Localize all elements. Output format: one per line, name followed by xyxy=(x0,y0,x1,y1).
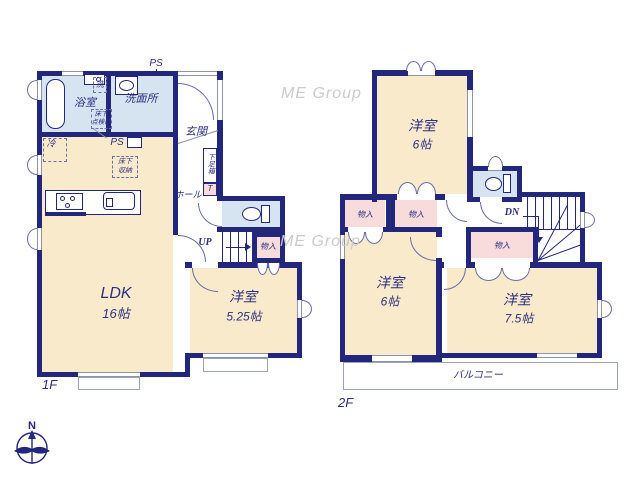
room-bedroom6n-fill xyxy=(377,76,467,194)
ps-top-label: PS xyxy=(149,58,162,71)
casement-window-icon xyxy=(488,156,503,167)
bathtub-icon xyxy=(46,79,65,129)
stairs-up-label: UP xyxy=(198,237,211,250)
wall xyxy=(442,353,602,358)
casement-window-icon xyxy=(421,61,436,71)
wall xyxy=(340,194,377,200)
window xyxy=(37,228,42,250)
toilet-door-swing-icon xyxy=(198,203,222,227)
toilet-tank-icon xyxy=(503,174,511,193)
toilet-tank-icon xyxy=(261,205,270,223)
room-bedroom6n-size: 6帖 xyxy=(413,138,432,153)
casement-window-icon xyxy=(302,300,312,318)
room-ldk-size: 16帖 xyxy=(102,306,129,322)
casement-window-icon xyxy=(406,61,421,71)
fridge-label: 冷 xyxy=(46,138,55,149)
floorplan: 浴室 洗面所 洗 床下 点検口 PS 玄関 下足箱 T ホール 冷 PS 床下 … xyxy=(0,0,640,480)
floor-storage-label: 床下 収納 xyxy=(118,158,132,176)
window xyxy=(537,353,577,358)
stairs-arrow-head xyxy=(245,243,251,251)
casement-window-icon xyxy=(585,212,595,228)
window xyxy=(62,71,83,76)
entrance-door-swing-icon xyxy=(178,83,214,120)
wall xyxy=(340,194,345,362)
compass: N xyxy=(10,418,66,470)
room-bath-label: 浴室 xyxy=(74,97,96,111)
casement-window-icon xyxy=(27,228,37,250)
compass-north-label: N xyxy=(28,420,36,432)
closet-opening xyxy=(397,194,435,200)
shoebox-label: 下足箱 xyxy=(206,154,215,175)
closet-a-label: 物入 xyxy=(357,210,373,220)
wall xyxy=(37,71,42,377)
stairs-2f xyxy=(527,197,580,262)
floor2-label: 2F xyxy=(338,395,353,411)
watermark: ME Group xyxy=(280,233,361,251)
room-ldk-label: LDK xyxy=(100,284,131,304)
floor-hatch-label: 床下 点検口 xyxy=(91,111,111,127)
burner-icon xyxy=(70,196,75,201)
counter-edge xyxy=(45,212,86,216)
room-bedroom75-label: 洋室 xyxy=(503,291,531,309)
window xyxy=(467,90,473,137)
wall xyxy=(580,192,585,268)
entrance-door xyxy=(177,71,217,76)
watermark: ME Group xyxy=(281,85,362,103)
room-hall-label: ホール xyxy=(174,189,201,200)
room-bedroom75-size: 7.5帖 xyxy=(505,312,534,327)
vanity-bowl-icon xyxy=(119,80,134,91)
wall xyxy=(173,137,178,235)
burner-icon xyxy=(60,196,65,201)
ps-box xyxy=(127,137,142,148)
faucet-icon xyxy=(106,198,113,207)
balcony-label: バルコニー xyxy=(453,370,503,383)
wall xyxy=(185,262,192,268)
room-bedroom525-size: 5.25帖 xyxy=(226,310,261,325)
window xyxy=(372,355,412,362)
stairs-arrow-head xyxy=(535,237,543,243)
closet-b-label: 物入 xyxy=(408,210,424,220)
room-bedroom6w-size: 6帖 xyxy=(381,295,400,310)
closet-1f-label: 物入 xyxy=(260,242,276,252)
toilet-bowl-icon xyxy=(485,177,502,191)
terrace-step xyxy=(203,358,268,372)
floor1-label: 1F xyxy=(42,377,57,393)
wall xyxy=(185,358,190,377)
burner-icon xyxy=(65,203,70,208)
bedroom6n-door-swing-icon xyxy=(446,200,467,222)
wall xyxy=(436,227,442,237)
wall xyxy=(372,70,377,202)
ps-kitchen-label: PS xyxy=(110,137,123,150)
stairs-arrow xyxy=(523,216,539,217)
wall xyxy=(217,196,285,201)
casement-window-icon xyxy=(27,155,37,175)
terrace-step xyxy=(78,377,140,390)
room-bedroom6n-label: 洋室 xyxy=(408,117,436,135)
room-ldk-fill xyxy=(42,137,173,372)
toilet2f-door-swing-icon xyxy=(480,202,502,224)
stairs-treads xyxy=(527,197,580,229)
room-washroom-label: 洗面所 xyxy=(125,93,158,107)
toilet-bowl-icon xyxy=(242,207,261,221)
room-bedroom6w-label: 洋室 xyxy=(376,274,404,292)
room-bedroom75-fill xyxy=(447,268,597,353)
stairs-arrow xyxy=(226,247,245,248)
room-bedroom525-label: 洋室 xyxy=(229,288,257,306)
window xyxy=(37,80,42,100)
stairs-arrow xyxy=(538,216,539,237)
closet-c-label: 物入 xyxy=(494,241,510,251)
window xyxy=(217,80,223,120)
room-entrance-label: 玄関 xyxy=(185,126,207,140)
window xyxy=(37,155,42,175)
washer-label: 洗 xyxy=(96,80,104,90)
casement-window-icon xyxy=(27,80,37,100)
stairs-dn-label: DN xyxy=(505,207,519,220)
shoebox-t-label: T xyxy=(208,184,213,194)
wall xyxy=(436,258,442,362)
casement-window-icon xyxy=(602,300,612,318)
